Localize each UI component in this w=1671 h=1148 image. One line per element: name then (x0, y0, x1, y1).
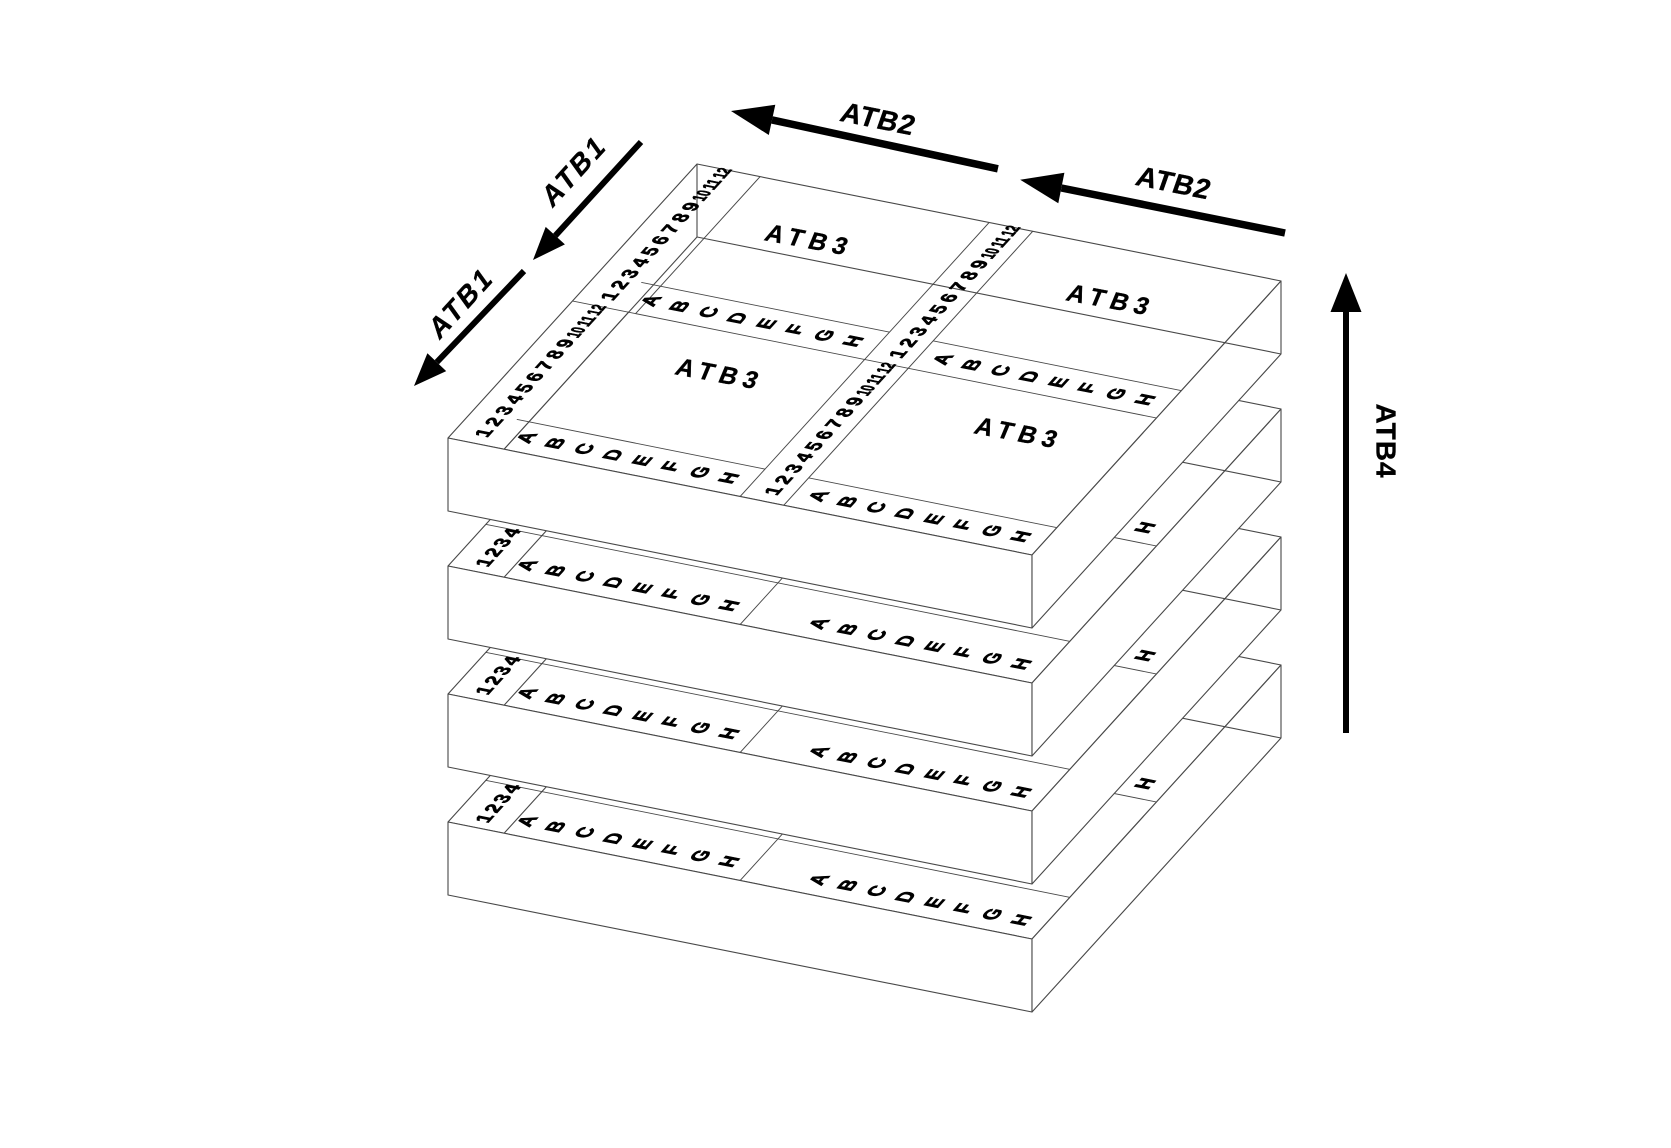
svg-text:ATB4: ATB4 (1371, 403, 1402, 478)
